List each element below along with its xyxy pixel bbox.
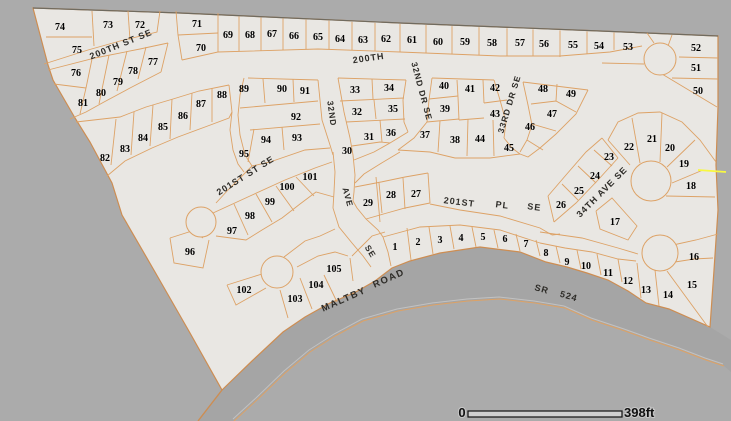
svg-text:65: 65	[313, 31, 323, 43]
svg-text:67: 67	[267, 28, 277, 40]
svg-text:1: 1	[393, 241, 398, 253]
svg-text:95: 95	[239, 148, 249, 160]
svg-text:29: 29	[363, 197, 373, 209]
svg-text:59: 59	[460, 36, 470, 48]
svg-text:51: 51	[691, 62, 701, 74]
svg-text:98: 98	[245, 210, 255, 222]
svg-text:97: 97	[227, 225, 237, 237]
svg-text:18: 18	[686, 180, 696, 192]
svg-text:11: 11	[603, 267, 613, 279]
svg-text:63: 63	[358, 34, 368, 46]
svg-text:86: 86	[178, 110, 188, 122]
svg-text:76: 76	[71, 67, 81, 79]
svg-text:78: 78	[128, 65, 138, 77]
svg-text:17: 17	[610, 216, 620, 228]
svg-text:84: 84	[138, 132, 148, 144]
svg-text:89: 89	[239, 83, 249, 95]
svg-text:62: 62	[381, 33, 391, 45]
svg-text:81: 81	[78, 97, 88, 109]
svg-text:73: 73	[103, 19, 113, 31]
svg-text:99: 99	[265, 196, 275, 208]
svg-text:91: 91	[300, 85, 310, 97]
svg-text:37: 37	[420, 129, 430, 141]
svg-text:30: 30	[342, 145, 352, 157]
svg-text:68: 68	[245, 29, 255, 41]
svg-text:45: 45	[504, 142, 514, 154]
svg-text:31: 31	[364, 131, 374, 143]
svg-text:8: 8	[544, 247, 549, 259]
svg-text:41: 41	[465, 83, 475, 95]
svg-text:10: 10	[581, 260, 591, 272]
svg-text:47: 47	[547, 108, 557, 120]
svg-text:66: 66	[289, 30, 299, 42]
svg-text:102: 102	[237, 284, 252, 296]
svg-text:6: 6	[503, 233, 508, 245]
svg-text:14: 14	[663, 289, 673, 301]
svg-text:64: 64	[335, 33, 345, 45]
svg-text:42: 42	[490, 82, 500, 94]
svg-text:12: 12	[623, 275, 633, 287]
svg-text:15: 15	[687, 279, 697, 291]
svg-text:7: 7	[524, 238, 529, 250]
svg-text:83: 83	[120, 143, 130, 155]
svg-text:96: 96	[185, 246, 195, 258]
svg-text:0: 0	[458, 405, 465, 420]
svg-text:20: 20	[665, 142, 675, 154]
svg-text:71: 71	[192, 18, 202, 30]
svg-text:60: 60	[433, 36, 443, 48]
svg-text:19: 19	[679, 158, 689, 170]
svg-text:44: 44	[475, 133, 485, 145]
svg-text:13: 13	[641, 284, 651, 296]
svg-text:33: 33	[350, 84, 360, 96]
svg-text:27: 27	[411, 188, 421, 200]
svg-text:5: 5	[481, 231, 486, 243]
svg-text:88: 88	[217, 89, 227, 101]
svg-text:54: 54	[594, 40, 604, 52]
svg-text:398ft: 398ft	[624, 405, 655, 420]
svg-text:77: 77	[148, 56, 158, 68]
svg-text:101: 101	[303, 171, 318, 183]
svg-text:100: 100	[280, 181, 295, 193]
svg-text:87: 87	[196, 98, 206, 110]
svg-text:80: 80	[96, 87, 106, 99]
svg-text:104: 104	[309, 279, 324, 291]
svg-text:32: 32	[352, 106, 362, 118]
svg-text:24: 24	[590, 170, 600, 182]
svg-text:16: 16	[689, 251, 699, 263]
svg-text:22: 22	[624, 141, 634, 153]
svg-text:23: 23	[604, 151, 614, 163]
svg-text:PL: PL	[495, 199, 510, 211]
svg-text:4: 4	[459, 232, 464, 244]
svg-text:82: 82	[100, 152, 110, 164]
svg-text:94: 94	[261, 134, 271, 146]
svg-text:56: 56	[539, 38, 549, 50]
svg-text:35: 35	[388, 103, 398, 115]
svg-text:SE: SE	[527, 201, 542, 213]
svg-text:79: 79	[113, 76, 123, 88]
svg-text:53: 53	[623, 41, 633, 53]
svg-text:57: 57	[515, 37, 525, 49]
svg-text:74: 74	[55, 21, 65, 33]
svg-text:26: 26	[556, 199, 566, 211]
svg-text:3: 3	[438, 234, 443, 246]
svg-text:70: 70	[196, 42, 206, 54]
svg-text:90: 90	[277, 83, 287, 95]
svg-text:52: 52	[691, 42, 701, 54]
svg-text:92: 92	[291, 111, 301, 123]
svg-text:46: 46	[525, 121, 535, 133]
svg-text:36: 36	[386, 127, 396, 139]
svg-text:55: 55	[568, 39, 578, 51]
svg-text:75: 75	[72, 44, 82, 56]
svg-text:61: 61	[407, 34, 417, 46]
svg-text:39: 39	[440, 103, 450, 115]
svg-text:38: 38	[450, 134, 460, 146]
svg-text:69: 69	[223, 29, 233, 41]
svg-text:40: 40	[439, 80, 449, 92]
svg-text:25: 25	[574, 185, 584, 197]
svg-text:50: 50	[693, 85, 703, 97]
svg-text:58: 58	[487, 37, 497, 49]
svg-text:21: 21	[647, 133, 657, 145]
svg-text:9: 9	[565, 256, 570, 268]
svg-text:85: 85	[158, 121, 168, 133]
svg-text:34: 34	[384, 82, 394, 94]
svg-text:49: 49	[566, 88, 576, 100]
svg-text:105: 105	[327, 263, 342, 275]
svg-text:2: 2	[416, 236, 421, 248]
svg-text:48: 48	[538, 83, 548, 95]
svg-text:28: 28	[386, 189, 396, 201]
svg-text:93: 93	[292, 132, 302, 144]
svg-text:103: 103	[288, 293, 303, 305]
